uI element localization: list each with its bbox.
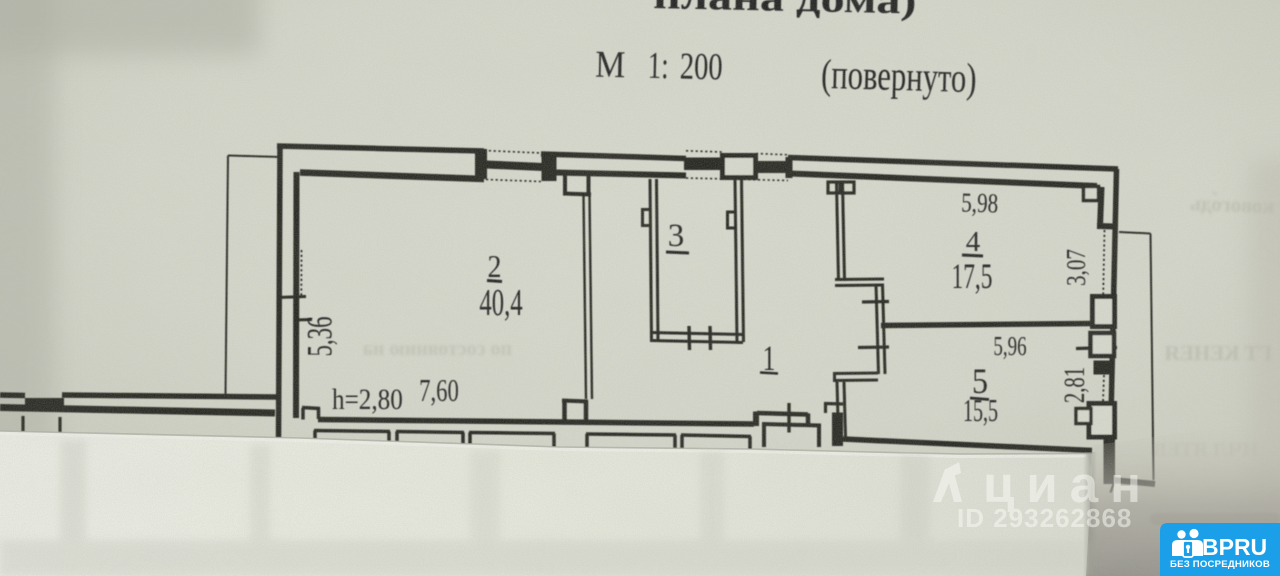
svg-text:БЕЗ ПОСРЕДНИКОВ: БЕЗ ПОСРЕДНИКОВ [1170, 559, 1270, 570]
svg-text:BPRU: BPRU [1202, 534, 1267, 560]
svg-text:ID 293262868: ID 293262868 [957, 503, 1132, 533]
